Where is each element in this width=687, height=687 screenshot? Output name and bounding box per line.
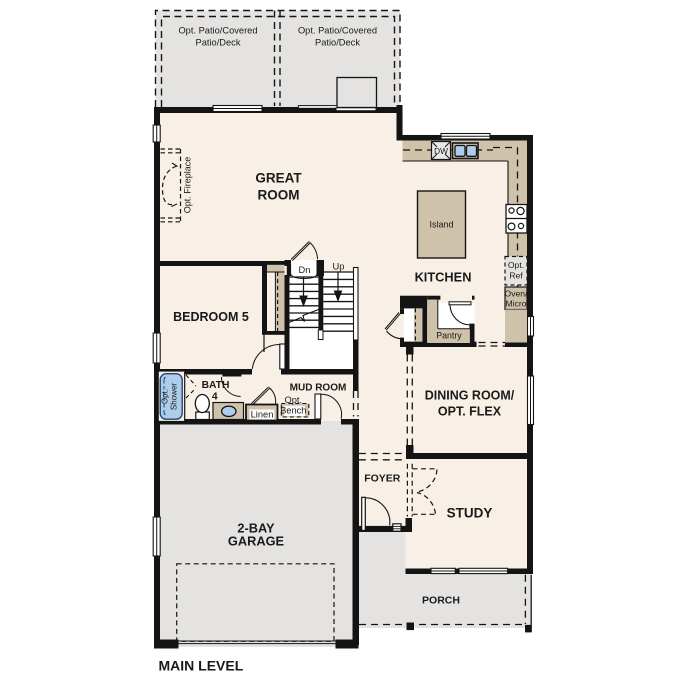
svg-text:BEDROOM 5: BEDROOM 5 <box>173 310 249 324</box>
svg-text:Linen: Linen <box>251 410 274 420</box>
svg-text:Opt. Patio/Covered: Opt. Patio/Covered <box>298 26 377 36</box>
svg-text:PORCH: PORCH <box>422 595 460 607</box>
svg-text:MUD ROOM: MUD ROOM <box>290 383 347 394</box>
svg-text:Shower: Shower <box>170 383 179 410</box>
svg-text:4: 4 <box>212 392 218 403</box>
svg-text:Opt.: Opt. <box>161 389 170 404</box>
svg-text:BATH: BATH <box>202 380 230 391</box>
svg-text:Up: Up <box>333 262 345 272</box>
svg-text:Ref: Ref <box>509 271 523 281</box>
svg-text:DINING ROOM/: DINING ROOM/ <box>425 389 515 403</box>
svg-text:KITCHEN: KITCHEN <box>415 270 472 285</box>
svg-text:OPT. FLEX: OPT. FLEX <box>438 405 502 419</box>
svg-text:Opt. Patio/Covered: Opt. Patio/Covered <box>178 26 257 36</box>
svg-text:Dn: Dn <box>299 265 311 275</box>
svg-text:Micro: Micro <box>505 299 526 309</box>
svg-text:STUDY: STUDY <box>447 506 493 521</box>
svg-text:FOYER: FOYER <box>364 473 401 485</box>
svg-text:ROOM: ROOM <box>258 188 300 203</box>
svg-text:GREAT: GREAT <box>255 171 302 186</box>
svg-text:Patio/Deck: Patio/Deck <box>196 38 241 48</box>
svg-text:Pantry: Pantry <box>436 330 462 340</box>
svg-text:Patio/Deck: Patio/Deck <box>315 38 360 48</box>
svg-text:GARAGE: GARAGE <box>228 534 285 549</box>
svg-text:Oven/: Oven/ <box>505 289 529 299</box>
svg-text:DW: DW <box>434 146 448 156</box>
svg-text:Bench: Bench <box>280 406 306 416</box>
svg-text:Opt. Fireplace: Opt. Fireplace <box>183 157 193 214</box>
svg-text:MAIN LEVEL: MAIN LEVEL <box>159 658 244 674</box>
svg-text:Opt.: Opt. <box>285 395 303 405</box>
svg-text:Opt.: Opt. <box>508 260 524 270</box>
svg-text:Island: Island <box>429 220 453 230</box>
